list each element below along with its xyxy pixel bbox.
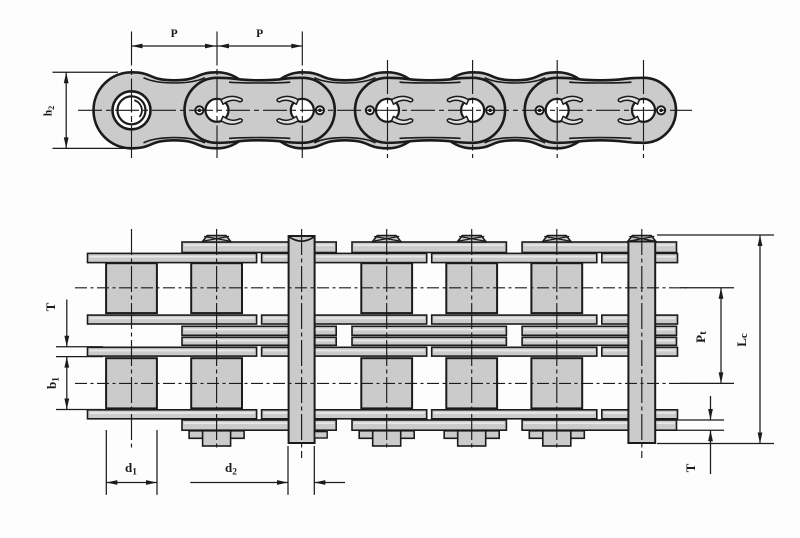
- svg-text:T: T: [683, 463, 698, 472]
- svg-text:T: T: [43, 302, 58, 311]
- svg-text:P: P: [256, 28, 263, 40]
- svg-text:P: P: [171, 28, 178, 40]
